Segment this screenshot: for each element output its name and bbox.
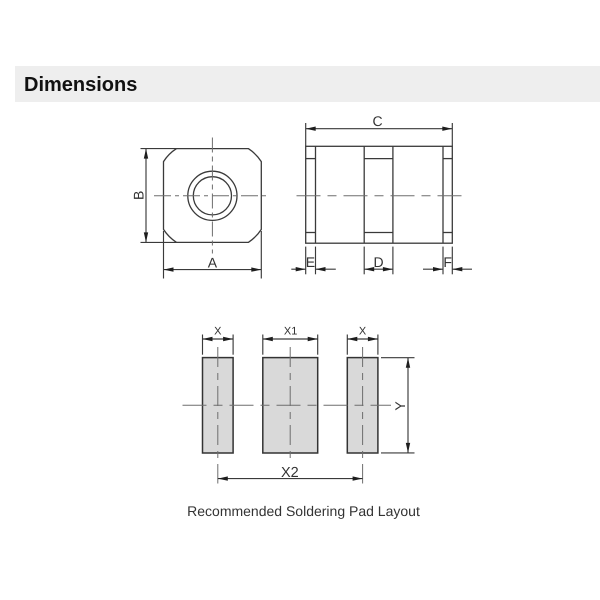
- svg-text:F: F: [443, 254, 452, 270]
- svg-text:X: X: [214, 326, 222, 338]
- svg-text:Y: Y: [392, 401, 408, 411]
- svg-text:B: B: [130, 191, 146, 200]
- svg-text:X: X: [359, 326, 367, 338]
- svg-text:Recommended Soldering Pad Layo: Recommended Soldering Pad Layout: [187, 503, 420, 519]
- svg-text:E: E: [306, 254, 315, 270]
- svg-text:X1: X1: [284, 326, 297, 338]
- svg-text:A: A: [208, 255, 218, 271]
- svg-text:C: C: [372, 113, 382, 129]
- svg-text:D: D: [373, 254, 383, 270]
- svg-text:X2: X2: [281, 465, 299, 481]
